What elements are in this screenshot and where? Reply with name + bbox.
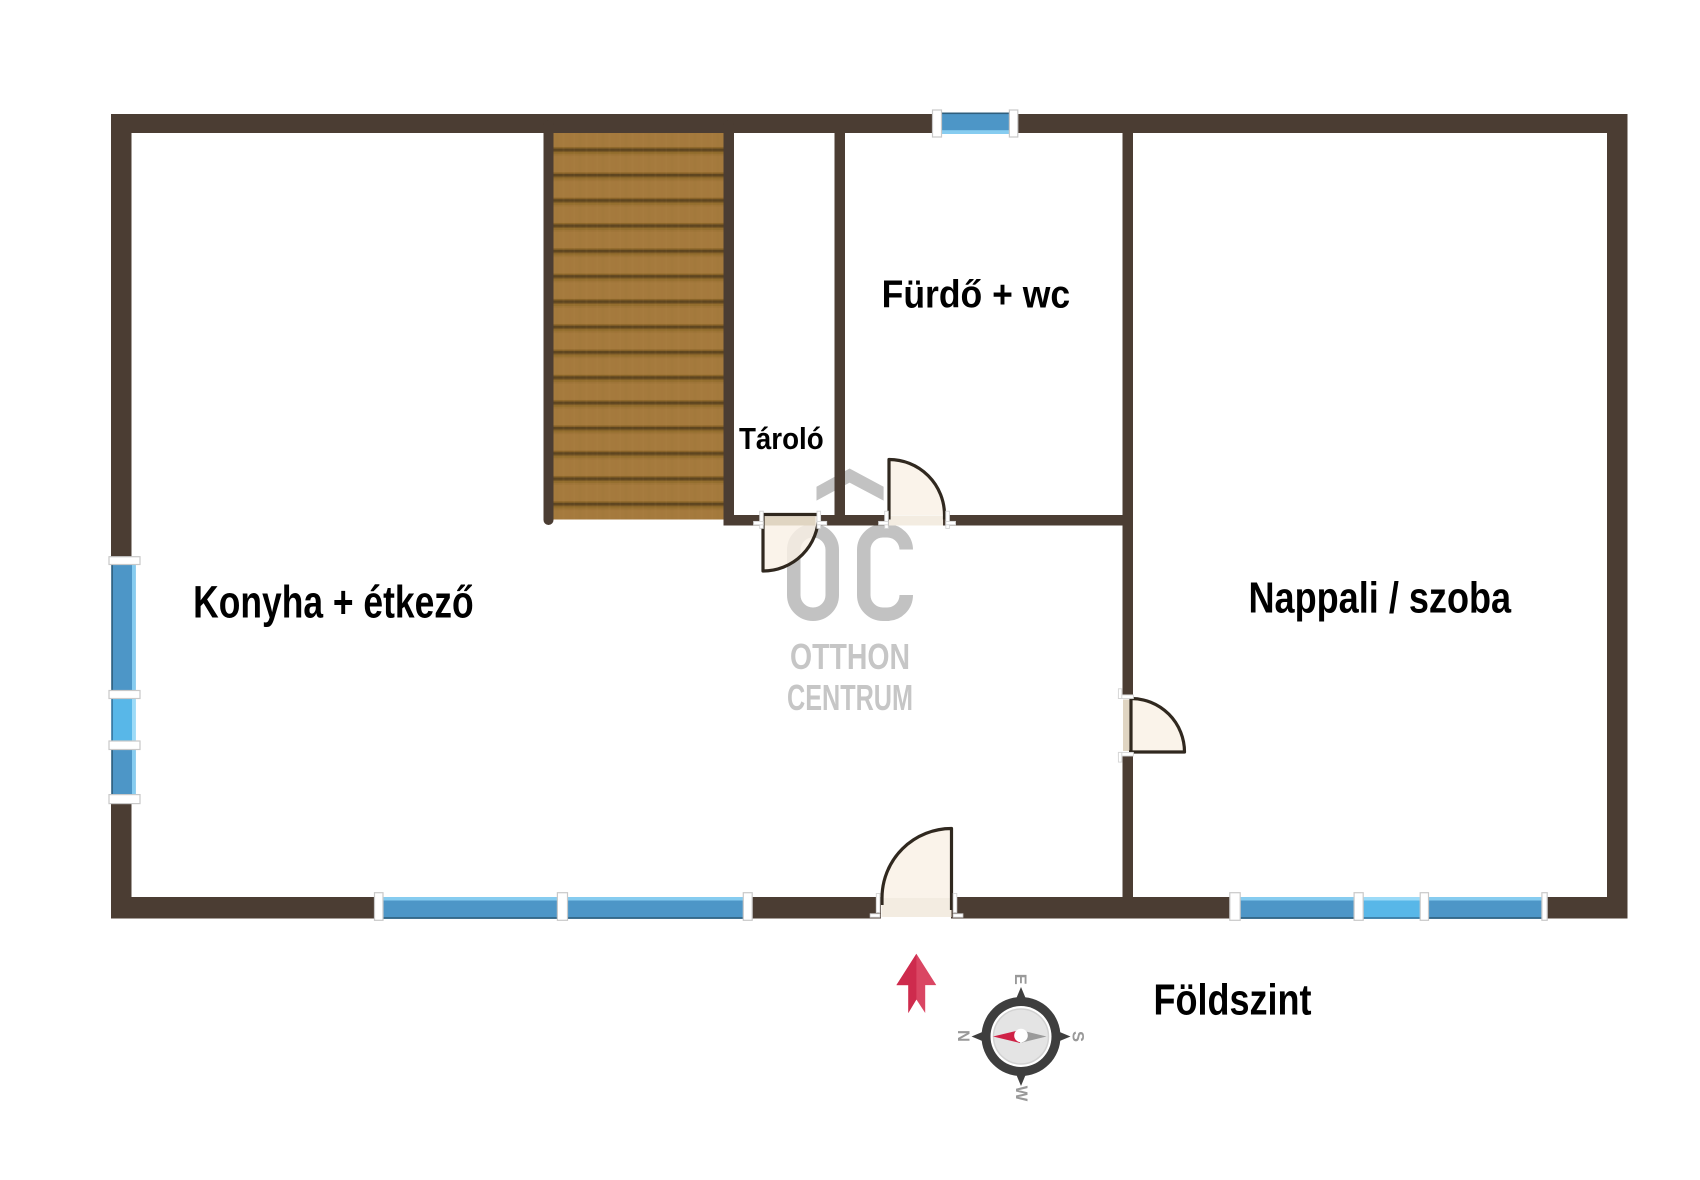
svg-text:Tároló: Tároló — [739, 423, 824, 456]
svg-text:Konyha + étkező: Konyha + étkező — [193, 576, 474, 627]
svg-text:W: W — [1012, 1086, 1030, 1102]
svg-text:Fürdő + wc: Fürdő + wc — [882, 274, 1071, 317]
svg-text:Nappali / szoba: Nappali / szoba — [1249, 575, 1512, 623]
svg-text:N: N — [954, 1030, 972, 1042]
svg-text:CENTRUM: CENTRUM — [787, 677, 913, 718]
svg-text:Földszint: Földszint — [1154, 975, 1312, 1024]
svg-text:S: S — [1069, 1031, 1087, 1042]
svg-text:OTTHON: OTTHON — [790, 636, 910, 677]
svg-text:E: E — [1011, 974, 1029, 985]
